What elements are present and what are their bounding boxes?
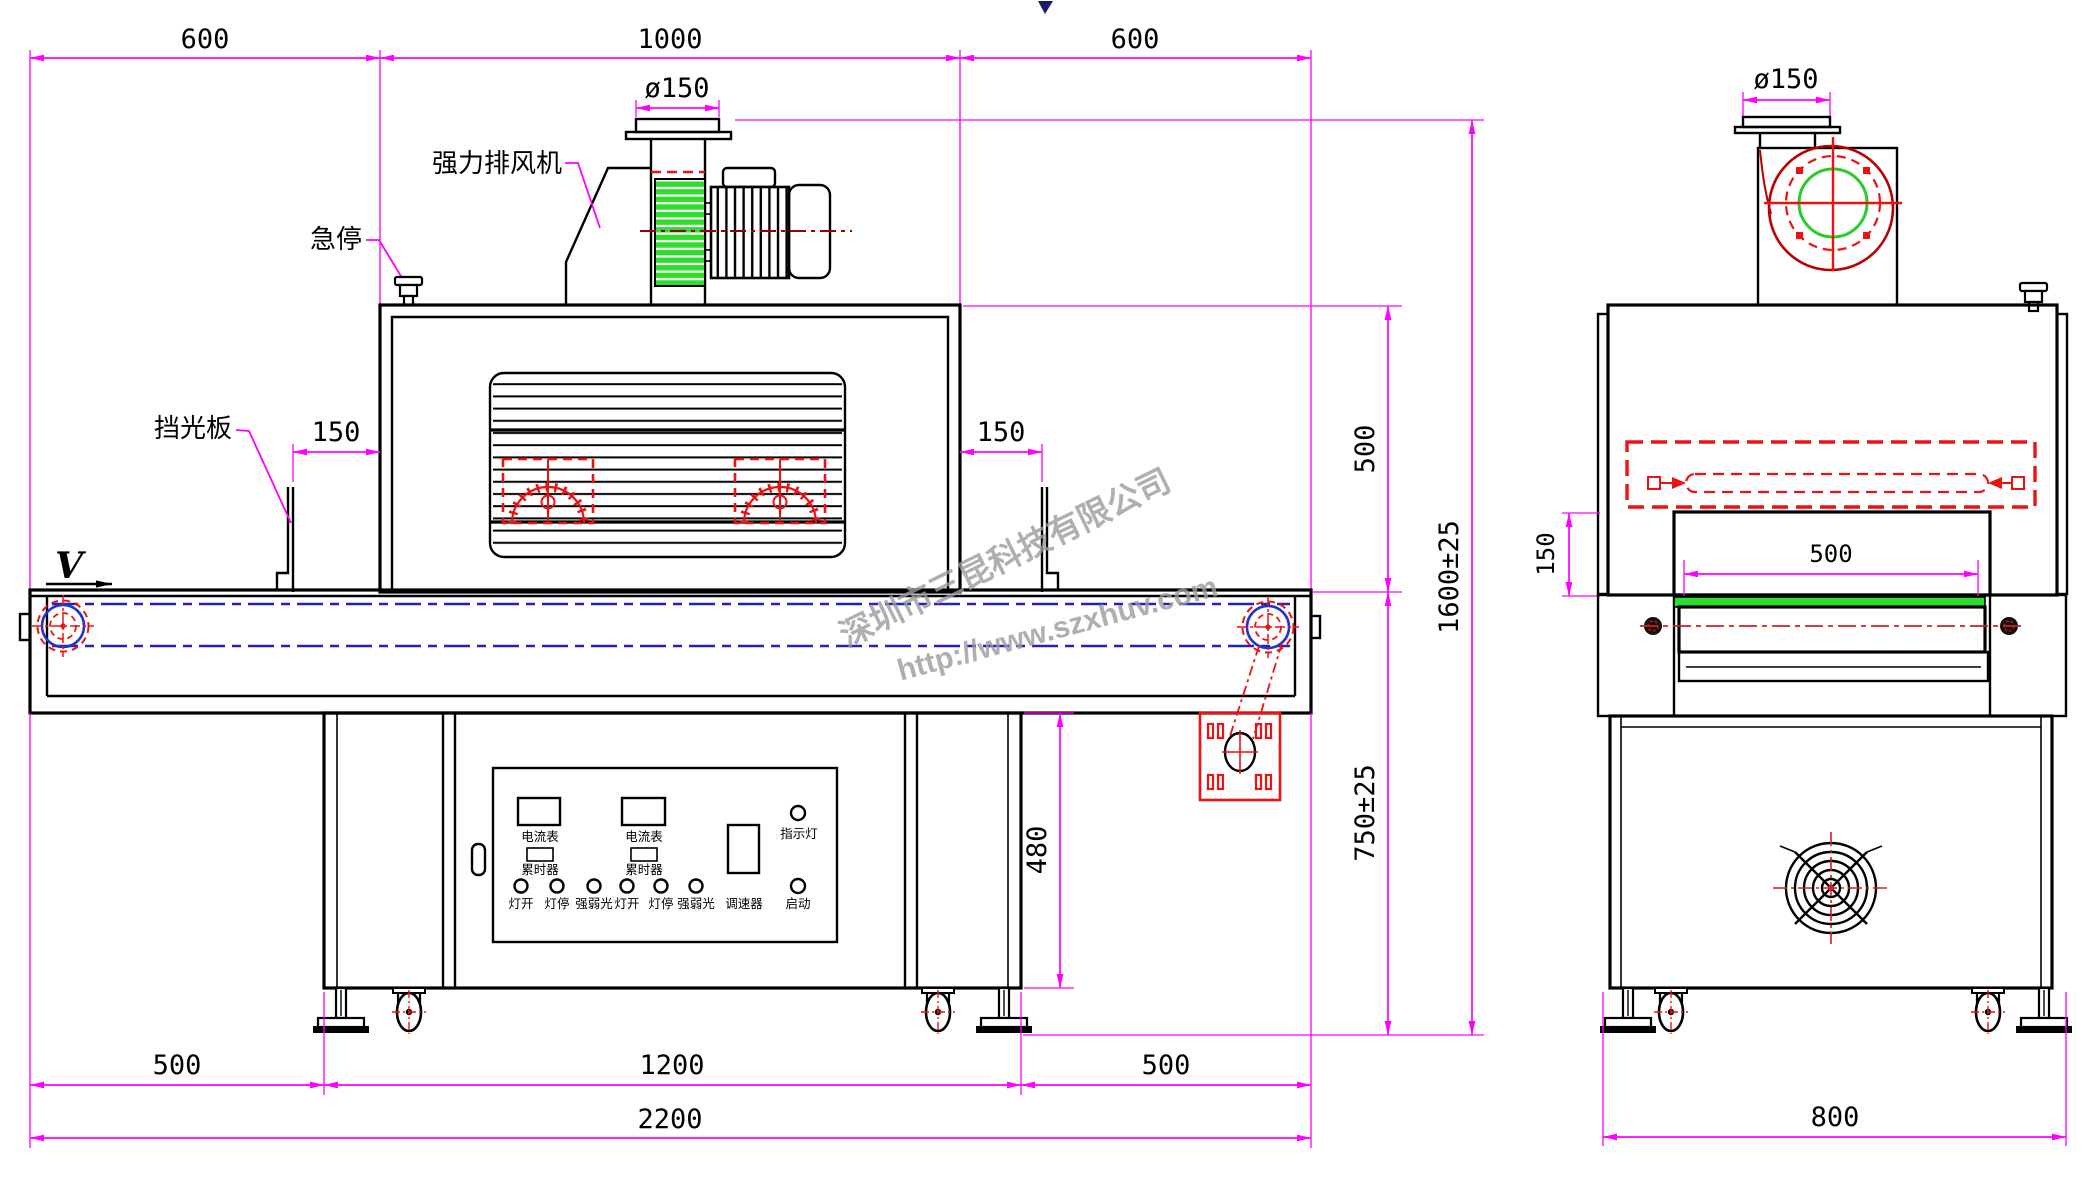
lamp-control-buttons: 灯开 灯停 强弱光 灯开 灯停 强弱光 [508,880,714,912]
dim-bottom-chain: 500 1200 500 2200 [30,713,1311,1148]
control-panel: 电流表 电流表 累时器 累时器 调速器 指示灯 启动 [493,768,837,942]
label-meter-left: 电流表 [521,830,559,844]
screw-foot-icon [314,988,368,1032]
dim-bottom-mid: 1200 [639,1050,704,1081]
dim-side-width: 800 [1811,1102,1860,1133]
dim-stand-height: 480 [1022,826,1053,875]
fan-grille-icon [1773,832,1889,944]
label-speed-controller: 调速器 [725,897,763,911]
label-direction-v: V [55,545,86,587]
caster-icon [1971,988,2005,1034]
dim-shield-right: 150 [977,417,1026,448]
blower-side [1735,117,2047,311]
dim-side-lamp-to-belt: 150 [1532,532,1560,575]
ammeter-left [518,798,560,825]
dim-top-left: 600 [181,24,230,55]
label-btn-1: 灯停 [544,896,569,911]
caster-icon [392,988,426,1034]
dim-total-height: 1600±25 [1434,520,1465,634]
blue-arrow-mark-icon [1038,1,1053,14]
label-emergency-stop: 急停 [310,224,362,254]
oven-body [380,305,960,592]
watermark: 深圳市三昆科技有限公司 http://www.szxhuv.com [834,461,1221,687]
dim-bottom-left: 500 [153,1050,202,1081]
label-btn-4: 灯停 [648,896,673,911]
speed-controller [728,825,759,873]
drive-motor-mount [1200,643,1282,800]
dim-top-mid: 1000 [637,24,702,55]
timer-right [631,848,657,861]
dim-side-opening: 500 [1809,540,1852,568]
label-btn-3: 灯开 [614,897,639,911]
callout-exhaust-fan: 强力排风机 [432,148,600,228]
stand-cabinet-front: 电流表 电流表 累时器 累时器 调速器 指示灯 启动 [314,713,1031,1034]
indicator-light-icon [791,806,805,820]
start-button-icon [791,879,805,893]
dim-belt-height: 750±25 [1350,764,1381,862]
label-timer-left: 累时器 [521,863,559,877]
ammeter-right [622,798,665,825]
uv-lamp-tube-icon [1648,474,2024,492]
caster-icon [1654,988,1688,1034]
stand-cabinet-side [1601,716,2071,1034]
dim-bottom-right: 500 [1142,1050,1191,1081]
fan-impeller-icon [655,179,705,286]
label-light-shield: 挡光板 [154,413,232,443]
exhaust-fan-assembly [566,119,852,305]
screw-foot-icon [977,988,1031,1032]
dim-duct-dia-side: ø150 [1753,64,1818,95]
fan-scroll-housing [566,168,651,305]
label-meter-right: 电流表 [625,830,663,844]
emergency-stop-icon [2020,283,2047,311]
dim-duct-front: ø150 [636,73,719,117]
dim-duct-dia-front: ø150 [644,73,709,104]
label-btn-0: 灯开 [508,897,533,911]
label-timer-right: 累时器 [625,863,663,877]
fan-volute-icon [1769,146,1893,270]
oven-body-side: 500 150 [1532,305,2067,596]
cad-drawing-uv-curing-machine: 600 1000 600 ø150 [0,0,2094,1177]
label-btn-5: 强弱光 [677,897,715,911]
label-btn-2: 强弱光 [575,897,613,911]
label-start: 启动 [785,897,810,911]
front-view: 600 1000 600 ø150 [20,24,1484,1148]
screw-foot-icon [1601,988,1655,1032]
dim-oven-to-belt: 500 [1350,425,1381,474]
dim-shield-left: 150 [312,417,361,448]
fan-motor-icon [711,187,789,278]
dim-heights: 500 750±25 1600±25 480 [735,120,1484,1035]
conveyor-side [1598,595,2066,716]
side-view: ø150 [1532,64,2071,1146]
dim-top-right: 600 [1111,24,1160,55]
dim-total-length: 2200 [637,1104,702,1135]
label-indicator: 指示灯 [780,826,818,841]
label-exhaust-fan: 强力排风机 [432,148,562,178]
callout-emergency-stop: 急停 [310,224,422,305]
caster-icon [921,988,955,1034]
emergency-stop-icon [395,277,422,305]
dim-duct-side: ø150 [1743,64,1830,117]
screw-foot-icon [2017,988,2071,1032]
door-handle [472,844,485,875]
conveyor-roller-left-icon [32,595,94,657]
timer-left [527,848,553,861]
belt-direction: V [46,545,112,587]
